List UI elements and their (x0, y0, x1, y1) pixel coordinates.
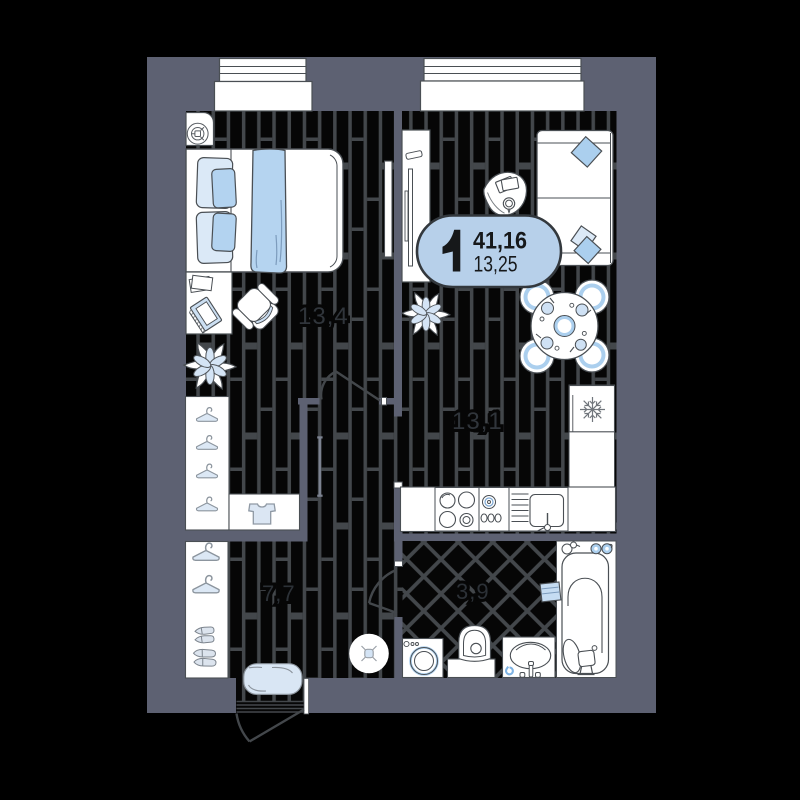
svg-text:41,16: 41,16 (473, 228, 527, 255)
svg-text:7,7: 7,7 (262, 581, 296, 606)
svg-text:13,25: 13,25 (474, 252, 518, 277)
svg-text:13,4: 13,4 (298, 303, 349, 330)
svg-text:3,9: 3,9 (456, 579, 490, 604)
svg-text:13,1: 13,1 (452, 408, 503, 435)
